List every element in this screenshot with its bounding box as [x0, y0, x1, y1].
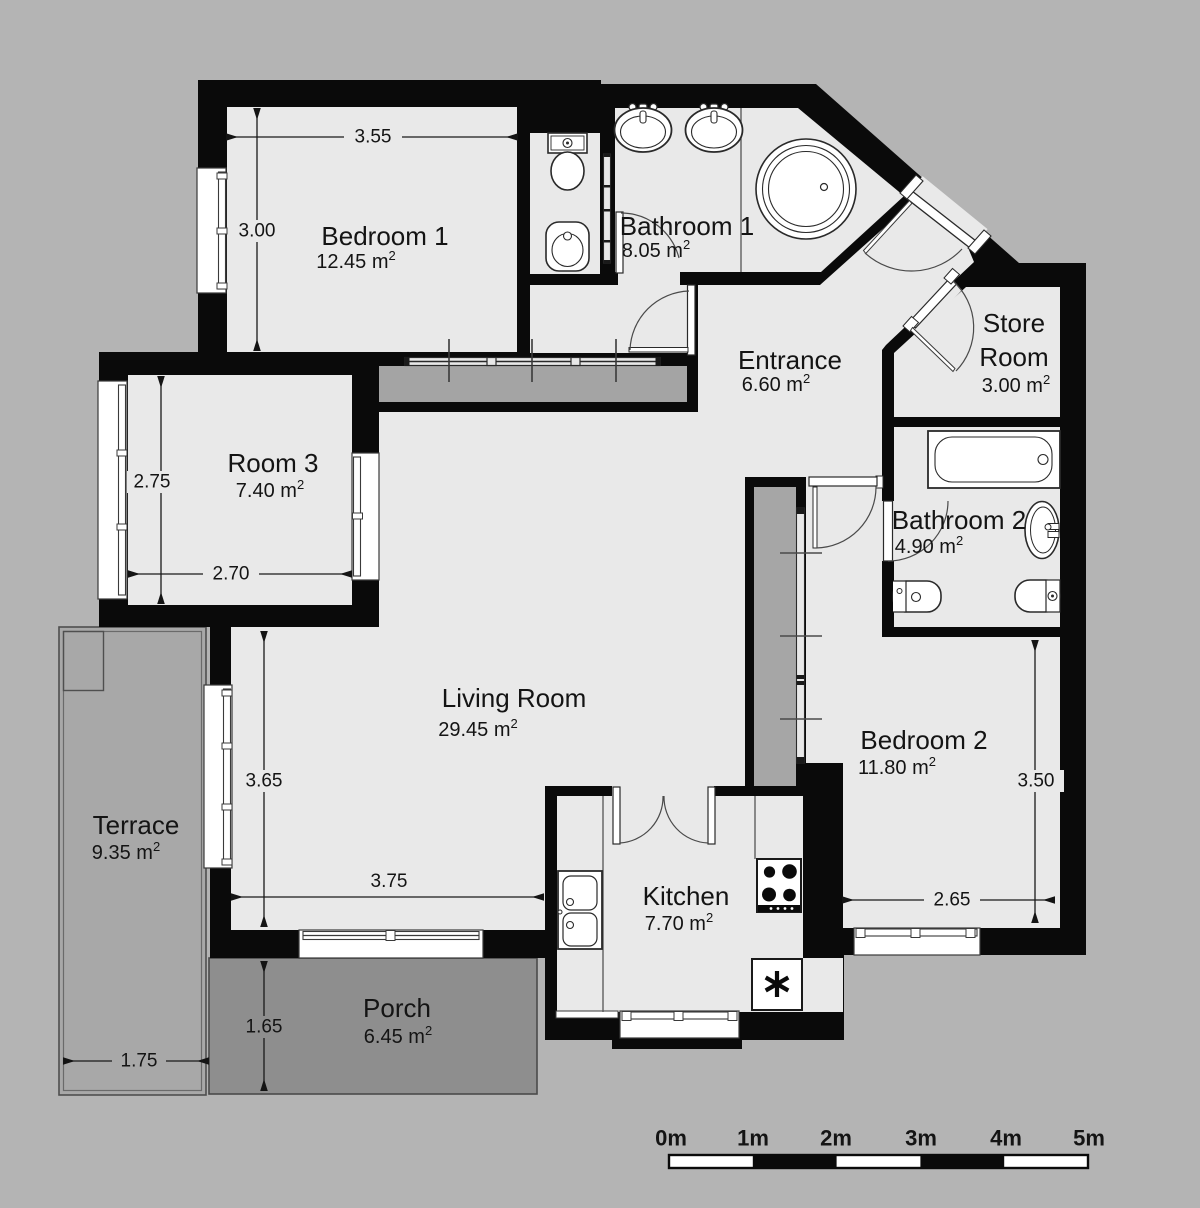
svg-text:Entrance: Entrance	[738, 345, 842, 375]
svg-text:0m: 0m	[655, 1126, 687, 1151]
svg-text:9.35 m2: 9.35 m2	[92, 839, 160, 865]
svg-text:2.75: 2.75	[134, 472, 171, 493]
svg-text:3.50: 3.50	[1018, 771, 1055, 792]
svg-text:1.65: 1.65	[246, 1017, 283, 1038]
svg-text:Room: Room	[979, 342, 1048, 372]
svg-text:12.45 m2: 12.45 m2	[316, 248, 396, 274]
svg-text:Bedroom 1: Bedroom 1	[321, 221, 448, 251]
svg-text:8.05 m2: 8.05 m2	[622, 237, 690, 263]
svg-text:Kitchen: Kitchen	[643, 881, 730, 911]
svg-text:Porch: Porch	[363, 993, 431, 1023]
svg-text:5m: 5m	[1073, 1126, 1105, 1151]
svg-text:6.45 m2: 6.45 m2	[364, 1023, 432, 1049]
svg-text:2.65: 2.65	[934, 890, 971, 911]
svg-text:1.75: 1.75	[121, 1051, 158, 1072]
svg-text:4.90 m2: 4.90 m2	[895, 533, 963, 559]
svg-text:1m: 1m	[737, 1126, 769, 1151]
svg-text:4m: 4m	[990, 1126, 1022, 1151]
svg-text:2.70: 2.70	[213, 564, 250, 585]
svg-text:3m: 3m	[905, 1126, 937, 1151]
svg-text:Bedroom 2: Bedroom 2	[860, 725, 987, 755]
svg-text:Bathroom 2: Bathroom 2	[892, 505, 1026, 535]
svg-text:3.55: 3.55	[355, 127, 392, 148]
svg-text:Room 3: Room 3	[227, 448, 318, 478]
svg-text:Living Room: Living Room	[442, 683, 587, 713]
svg-text:2m: 2m	[820, 1126, 852, 1151]
svg-text:3.00 m2: 3.00 m2	[982, 372, 1050, 398]
svg-text:6.60 m2: 6.60 m2	[742, 371, 810, 397]
svg-text:11.80 m2: 11.80 m2	[858, 754, 936, 780]
svg-text:3.65: 3.65	[246, 771, 283, 792]
svg-text:3.00: 3.00	[239, 221, 276, 242]
svg-text:Store: Store	[983, 308, 1045, 338]
svg-text:7.70 m2: 7.70 m2	[645, 910, 713, 936]
svg-text:7.40 m2: 7.40 m2	[236, 477, 304, 503]
svg-text:3.75: 3.75	[371, 871, 408, 892]
svg-text:Terrace: Terrace	[93, 810, 180, 840]
svg-text:29.45 m2: 29.45 m2	[438, 716, 518, 742]
